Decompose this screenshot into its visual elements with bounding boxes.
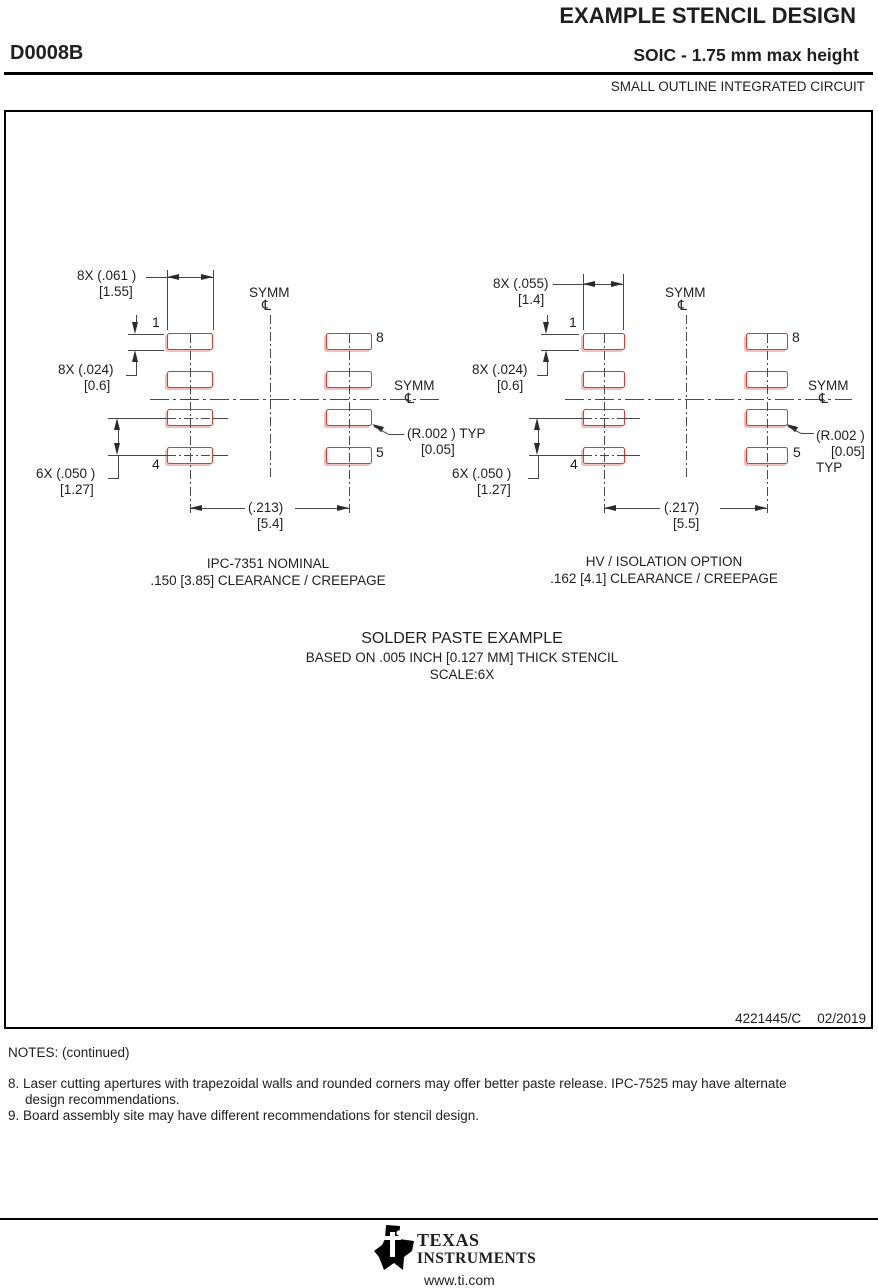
extension-line — [625, 418, 640, 419]
ti-logo-icon — [373, 1224, 415, 1283]
pin-number-8: 8 — [792, 330, 800, 345]
symm-centerline-horizontal — [565, 399, 852, 400]
caption-line2: .150 [3.85] CLEARANCE / CREEPAGE — [98, 572, 438, 589]
pin-number-1: 1 — [152, 315, 160, 330]
extension-line — [213, 418, 228, 419]
arrowhead — [201, 274, 213, 280]
extension-line — [167, 418, 213, 419]
dim-pitch-label: 6X (.050 ) — [452, 466, 511, 481]
radius-note-mm-label: [0.05] — [421, 442, 455, 457]
dimension-line — [118, 430, 119, 443]
brand-name-top: TEXAS — [417, 1230, 480, 1251]
pin-number-5: 5 — [793, 445, 801, 460]
header-rule — [4, 72, 873, 75]
diagram-caption: HV / ISOLATION OPTION .162 [4.1] CLEARAN… — [494, 553, 834, 587]
footer-rule — [0, 1218, 878, 1220]
extension-line — [213, 455, 228, 456]
pin-number-4: 4 — [570, 457, 578, 472]
dim-width-label: 8X (.055) — [493, 276, 549, 291]
website-link[interactable]: www.ti.com — [424, 1273, 495, 1288]
datasheet-page: EXAMPLE STENCIL DESIGN D0008B SOIC - 1.7… — [0, 0, 878, 1288]
symm-label-side: SYMM — [394, 378, 435, 393]
dim-span-mm-label: [5.4] — [257, 516, 283, 531]
dim-pad-height-label: 8X (.024) — [472, 362, 528, 377]
arrowhead — [167, 274, 179, 280]
centerline — [604, 334, 605, 516]
centerline — [349, 334, 350, 516]
dim-width-mm-label: [1.4] — [518, 292, 544, 307]
dim-pitch-label: 6X (.050 ) — [36, 466, 95, 481]
page-title: EXAMPLE STENCIL DESIGN — [559, 3, 856, 29]
radius-note-label: (R.002 ) TYP — [407, 426, 486, 441]
symm-centerline-vertical — [270, 315, 271, 480]
extension-line — [625, 455, 640, 456]
dim-width-label: 8X (.061 ) — [77, 268, 136, 283]
extension-line — [213, 270, 214, 330]
arrowhead — [583, 281, 595, 287]
document-number: 4221445/C — [735, 1011, 801, 1026]
arrowhead — [534, 443, 540, 455]
note-8-line1: 8. Laser cutting apertures with trapezoi… — [8, 1076, 787, 1091]
extension-line — [128, 334, 164, 335]
arrowhead — [534, 418, 540, 430]
radius-note-typ-label: TYP — [816, 460, 842, 475]
radius-note-mm-label: [0.05] — [831, 444, 865, 459]
leader-line — [537, 375, 548, 376]
dimension-line — [538, 455, 539, 478]
arrowhead — [132, 322, 138, 334]
centerline-icon: ℄ — [678, 299, 687, 313]
centerline-icon: ℄ — [405, 392, 414, 406]
arrowhead — [114, 443, 120, 455]
symm-centerline-horizontal — [150, 399, 440, 400]
extension-line — [167, 455, 213, 456]
arrowhead — [543, 350, 549, 362]
figure-scale: SCALE:6X — [242, 666, 682, 683]
dim-span-mm-label: [5.5] — [673, 516, 699, 531]
caption-line2: .162 [4.1] CLEARANCE / CREEPAGE — [494, 570, 834, 587]
dim-pitch-mm-label: [1.27] — [477, 482, 511, 497]
note-9: 9. Board assembly site may have differen… — [8, 1108, 479, 1123]
centerline-icon: ℄ — [819, 392, 828, 406]
centerline-icon: ℄ — [262, 299, 271, 313]
revision-date: 02/2019 — [817, 1011, 866, 1026]
dim-pad-height-label: 8X (.024) — [58, 362, 114, 377]
leader-line — [108, 478, 119, 479]
pin-number-5: 5 — [376, 445, 384, 460]
symm-label-side: SYMM — [808, 378, 849, 393]
arrowhead — [755, 505, 767, 511]
diagram-caption: IPC-7351 NOMINAL .150 [3.85] CLEARANCE /… — [98, 555, 438, 589]
centerline — [767, 334, 768, 516]
dim-span-label: (.217) — [664, 500, 699, 515]
figure-title: SOLDER PASTE EXAMPLE — [242, 628, 682, 649]
pin-number-8: 8 — [376, 330, 384, 345]
extension-line — [583, 418, 625, 419]
dim-pad-height-mm-label: [0.6] — [497, 378, 523, 393]
radius-note-label: (R.002 ) — [816, 428, 865, 443]
arrowhead — [337, 505, 349, 511]
arrowhead — [114, 418, 120, 430]
caption-line1: HV / ISOLATION OPTION — [494, 553, 834, 570]
dim-span-label: (.213) — [248, 500, 283, 515]
arrowhead — [132, 350, 138, 362]
figure-subtitle-block: SOLDER PASTE EXAMPLE BASED ON .005 INCH … — [242, 628, 682, 683]
arrowhead — [604, 505, 616, 511]
package-code: D0008B — [10, 42, 83, 65]
figure-subtitle: BASED ON .005 INCH [0.127 MM] THICK STEN… — [242, 649, 682, 666]
arrowhead — [611, 281, 623, 287]
centerline — [190, 334, 191, 516]
dim-pad-height-mm-label: [0.6] — [84, 378, 110, 393]
note-8-line2: design recommendations. — [25, 1092, 180, 1107]
dimension-line — [547, 362, 548, 375]
package-family: SMALL OUTLINE INTEGRATED CIRCUIT — [611, 79, 865, 94]
dim-pitch-mm-label: [1.27] — [60, 482, 94, 497]
extension-line — [623, 274, 624, 330]
extension-line — [583, 455, 625, 456]
brand-name-bottom: INSTRUMENTS — [417, 1250, 536, 1268]
caption-line1: IPC-7351 NOMINAL — [98, 555, 438, 572]
title-block: 4221445/C02/2019 — [596, 1011, 866, 1026]
pin-number-1: 1 — [569, 315, 577, 330]
pin-number-4: 4 — [152, 457, 160, 472]
leader-line — [801, 433, 814, 434]
dimension-line — [538, 430, 539, 443]
leader-line — [528, 478, 539, 479]
leader-line — [389, 434, 404, 435]
leader-line — [126, 375, 137, 376]
dimension-line — [136, 362, 137, 375]
symm-centerline-vertical — [686, 315, 687, 480]
arrowhead — [543, 322, 549, 334]
package-description: SOIC - 1.75 mm max height — [633, 45, 859, 65]
notes-title: NOTES: (continued) — [8, 1045, 130, 1060]
arrowhead — [190, 505, 202, 511]
dimension-line — [118, 455, 119, 478]
dim-width-mm-label: [1.55] — [99, 284, 133, 299]
extension-line — [541, 334, 579, 335]
